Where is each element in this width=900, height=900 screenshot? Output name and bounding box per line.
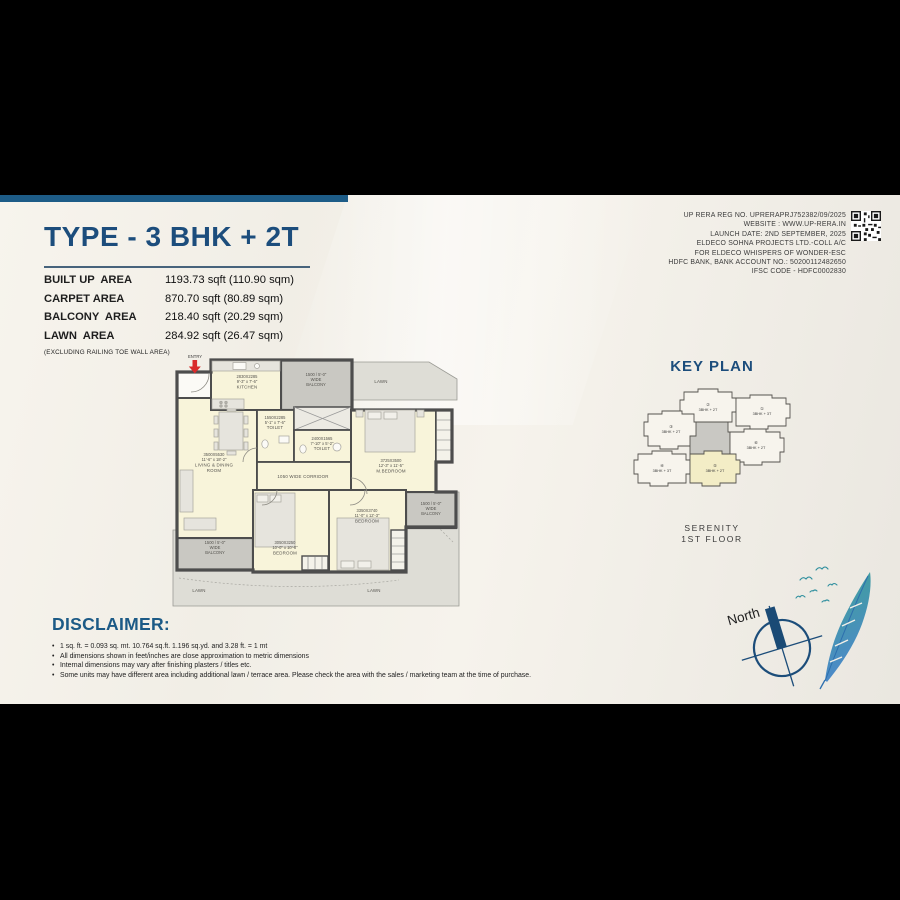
dining-table <box>219 412 243 450</box>
unit4-type: 3BHK + 3T <box>653 469 672 473</box>
keyplan-core <box>690 422 730 454</box>
tower-name: SERENITY <box>628 523 796 534</box>
keyplan-title: KEY PLAN <box>628 358 796 375</box>
living-name: ROOM <box>207 468 222 473</box>
keyplan: ② 3BHK + 2T ① 3BHK + 3T ③ 3BHK + 2T ⑥ 3B… <box>628 384 796 492</box>
disclaimer-item: Internal dimensions may vary after finis… <box>52 661 792 671</box>
wardrobe <box>391 530 406 570</box>
disclaimer-item: All dimensions shown in feet/inches are … <box>52 652 792 662</box>
rera-line: LAUNCH DATE: 2ND SEPTEMBER, 2025 <box>540 230 846 239</box>
wc <box>300 445 306 453</box>
qr-code-icon <box>851 209 881 243</box>
unit2-num: ② <box>706 403 710 407</box>
living-dim-ft: 11'-6" x 18'-2" <box>202 457 227 462</box>
area-value: 870.70 sqft (80.89 sqm) <box>165 293 283 305</box>
area-label: BALCONY AREA <box>44 311 165 323</box>
rera-line: IFSC CODE - HDFC0002830 <box>540 267 846 276</box>
lawn-label: LAWN <box>374 379 387 384</box>
area-row: LAWN AREA 284.92 sqft (26.47 sqm) <box>44 330 344 349</box>
tower-floor-label: SERENITY 1ST FLOOR <box>628 523 796 545</box>
unit3-num: ③ <box>669 425 673 429</box>
area-row: BUILT UP AREA 1193.73 sqft (110.90 sqm) <box>44 274 344 293</box>
disclaimer-list: 1 sq. ft. = 0.093 sq. mt. 10.764 sq.ft. … <box>52 642 792 680</box>
rera-line: HDFC BANK, BANK ACCOUNT NO.: 50200112482… <box>540 258 846 267</box>
title-underline <box>44 266 310 268</box>
unit4-num: ④ <box>660 464 664 468</box>
corridor-label: 1050 WIDE CORRIDOR <box>277 474 328 479</box>
lawn-label: LAWN <box>192 588 205 593</box>
entry-vestibule <box>177 372 211 398</box>
toilet2-name: TOILET <box>314 446 331 451</box>
wc <box>262 440 268 448</box>
unit6-num: ⑥ <box>754 441 758 445</box>
area-table: BUILT UP AREA 1193.73 sqft (110.90 sqm) … <box>44 274 344 356</box>
floor-name: 1ST FLOOR <box>628 534 796 545</box>
bedroom3-dim-ft: 10'-0" x 10'-8" <box>272 545 298 550</box>
balcony-top-label: BALCONY <box>306 382 326 387</box>
basin <box>333 443 341 451</box>
kitchen-dim-ft: 9'-3" x 7'-6" <box>237 379 258 384</box>
page-title: TYPE - 3 BHK + 2T <box>44 221 299 253</box>
kitchen-counter <box>212 399 244 409</box>
unit3-type: 3BHK + 2T <box>662 430 681 434</box>
unit5-num: ⑤ <box>713 464 717 468</box>
unit1-type: 3BHK + 3T <box>753 412 772 416</box>
page-canvas: TYPE - 3 BHK + 2T BUILT UP AREA 1193.73 … <box>0 195 900 704</box>
area-label: LAWN AREA <box>44 330 165 342</box>
kitchen-name: KITCHEN <box>237 385 258 390</box>
disclaimer-item: 1 sq. ft. = 0.093 sq. mt. 10.764 sq.ft. … <box>52 642 792 652</box>
unit2-type: 3BHK + 2T <box>699 408 718 412</box>
accent-bar <box>0 195 348 202</box>
entry-label: ENTRY <box>188 354 202 359</box>
balcony-bl-label: BALCONY <box>205 550 225 555</box>
bedroom3-name: BEDROOM <box>273 551 297 556</box>
bedroom2-dim-ft: 11'-0" x 12'-3" <box>355 513 380 518</box>
lawn-label: LAWN <box>367 588 380 593</box>
rera-line: WEBSITE : WWW.UP-RERA.IN <box>540 220 846 229</box>
area-row: BALCONY AREA 218.40 sqft (20.29 sqm) <box>44 311 344 330</box>
lawn-top-right <box>352 362 457 400</box>
area-value: 1193.73 sqft (110.90 sqm) <box>165 274 294 286</box>
disclaimer-title: DISCLAIMER: <box>52 614 792 635</box>
sofa <box>184 518 216 530</box>
rera-line: FOR ELDECO WHISPERS OF WONDER-ESC <box>540 249 846 258</box>
sofa <box>180 470 193 512</box>
brochure-page: { "header": { "title": "TYPE - 3 BHK + 2… <box>0 0 900 900</box>
unit5-type: 3BHK + 2T <box>706 469 725 473</box>
disclaimer-item: Some units may have different area inclu… <box>52 671 792 681</box>
area-value: 284.92 sqft (26.47 sqm) <box>165 330 283 342</box>
rera-block: UP RERA REG NO. UPRERAPRJ752382/09/2025 … <box>540 211 846 277</box>
unit1-num: ① <box>760 407 764 411</box>
area-label: CARPET AREA <box>44 293 165 305</box>
basin <box>279 436 289 443</box>
rera-line: ELDECO SOHNA PROJECTS LTD.-COLL A/C <box>540 239 846 248</box>
area-row: CARPET AREA 870.70 sqft (80.89 sqm) <box>44 293 344 312</box>
feather-logo-icon <box>792 562 892 692</box>
wardrobe <box>436 410 452 462</box>
balcony-right-label: BALCONY <box>421 511 441 516</box>
area-value: 218.40 sqft (20.29 sqm) <box>165 311 283 323</box>
floorplan: ENTRY 2830X2285 9'-3" x 7'-6" KITCHEN 15… <box>169 352 463 610</box>
mbedroom-name: M.BEDROOM <box>376 469 406 474</box>
mbedroom-dim-ft: 12'-3" x 11'-5" <box>379 463 404 468</box>
rera-line: UP RERA REG NO. UPRERAPRJ752382/09/2025 <box>540 211 846 220</box>
area-label: BUILT UP AREA <box>44 274 165 286</box>
unit6-type: 3BHK + 2T <box>747 446 766 450</box>
toilet1-name: TOILET <box>267 425 284 430</box>
disclaimer: DISCLAIMER: 1 sq. ft. = 0.093 sq. mt. 10… <box>52 614 792 680</box>
living-name: LIVING & DINING <box>195 463 234 468</box>
bedroom2-name: BEDROOM <box>355 519 379 524</box>
